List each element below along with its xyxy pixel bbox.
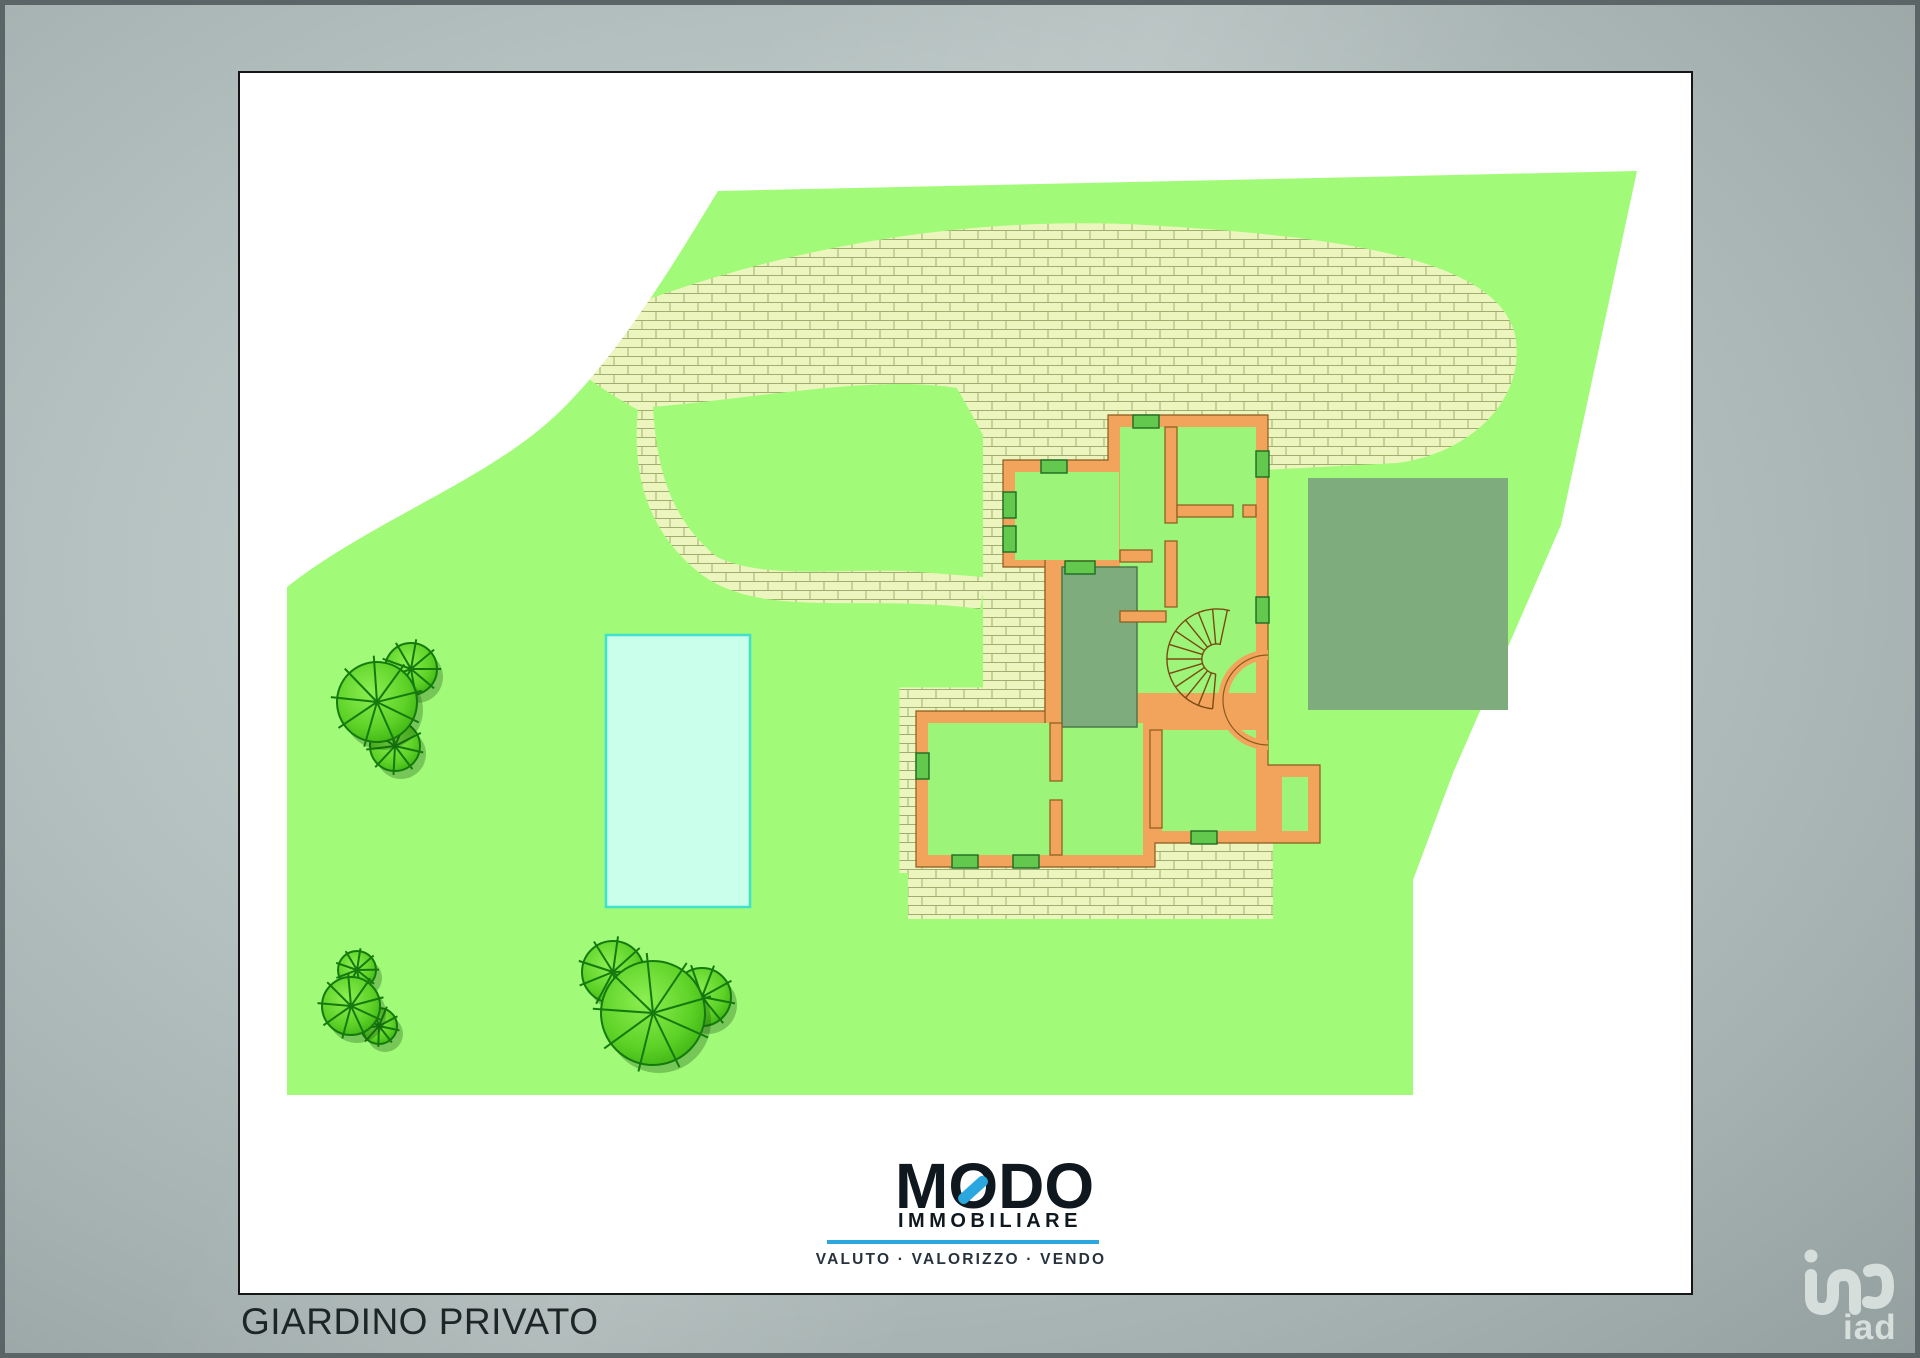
brand-name: M O D O [895, 1154, 1094, 1218]
brand-divider [827, 1240, 1099, 1244]
brand-letter: O [1044, 1154, 1094, 1218]
brand-tagline: VALUTO · VALORIZZO · VENDO [809, 1251, 1113, 1269]
page-background: M O D O IMMOBILIARE VALUTO · VALORIZZO ·… [0, 0, 1920, 1358]
brand-letter-o: O [948, 1154, 998, 1218]
brand-letter: D [998, 1154, 1044, 1218]
terrace-rect [1308, 478, 1508, 710]
page-title: GIARDINO PRIVATO [241, 1301, 599, 1343]
iad-logo-icon [1805, 1250, 1889, 1310]
courtyard-rect [1062, 567, 1137, 727]
iad-watermark-label: iad [1843, 1308, 1897, 1348]
brand-letter: M [895, 1154, 948, 1218]
swimming-pool [606, 635, 750, 907]
brand-subtitle: IMMOBILIARE [898, 1210, 1082, 1233]
